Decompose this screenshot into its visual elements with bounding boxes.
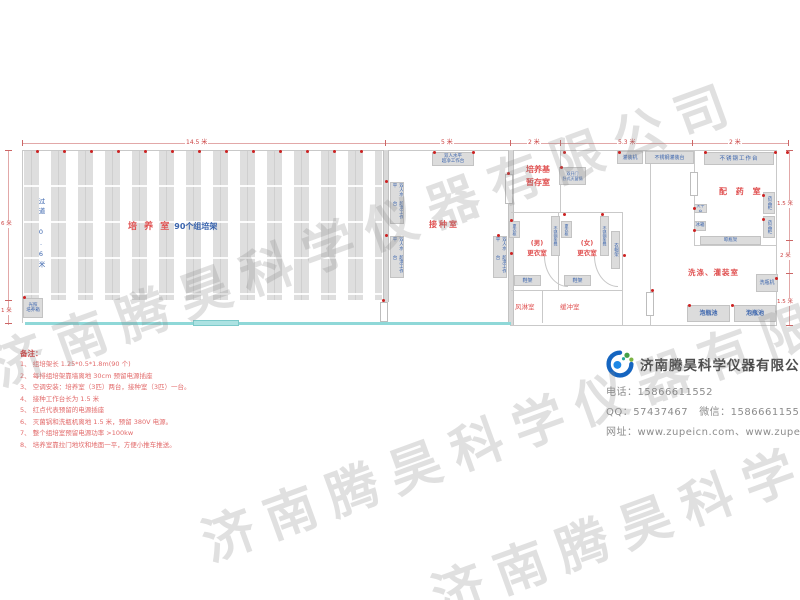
note-item: 5、 红点代表预留的电源插座 xyxy=(20,405,350,417)
wall xyxy=(383,150,389,302)
power-socket-dot xyxy=(774,151,777,154)
note-item: 3、 空调安装：培养室（3匹）两台，接种室（3匹）一台。 xyxy=(20,382,350,394)
company-wechat: 微信：15866611552 xyxy=(699,407,800,418)
dispensing-room-label: 配 药 室 xyxy=(719,186,764,197)
power-socket-dot xyxy=(198,150,201,153)
shoe-rack: 鞋架 xyxy=(564,275,591,286)
note-item: 2、 每排组培架靠墙离地 30cm 预留电源插座 xyxy=(20,371,350,383)
notes-block: 备注： 1、 组培架长 1.25*0.5*1.8m(90 个) 2、 每排组培架… xyxy=(20,349,350,451)
power-socket-dot xyxy=(693,229,696,232)
aisle-label: 过道 0.6米 xyxy=(36,198,46,271)
power-socket-dot xyxy=(333,150,336,153)
power-socket-dot xyxy=(36,150,39,153)
watermark: 济南腾昊科学仪器有限公司 xyxy=(420,289,800,600)
dim-right-middle: 2 米 xyxy=(779,253,792,260)
company-phone: 电话：15866611552 xyxy=(606,383,800,398)
wardrobe: 更衣柜 xyxy=(509,221,520,238)
power-socket-dot xyxy=(786,151,789,154)
clean-bench: 双人水平 超净工作台 xyxy=(390,236,404,278)
note-item: 6、 灭菌锅和洗瓶机离地 1.5 米，预留 380V 电源。 xyxy=(20,417,350,429)
inoculation-room-label: 接种室 xyxy=(429,219,459,230)
soak-pool: 泡瓶池 xyxy=(687,305,730,322)
power-socket-dot xyxy=(775,277,778,280)
company-name: 济南腾昊科学仪器有限公司 xyxy=(640,354,800,374)
corridor-glass-wall xyxy=(25,322,511,325)
door xyxy=(380,302,388,322)
power-socket-dot xyxy=(560,166,563,169)
stainless-filling-table: 不锈钢灌装台 xyxy=(645,151,694,164)
wall xyxy=(622,212,623,325)
power-socket-dot xyxy=(252,150,255,153)
men-changing-room-label: (男) 更衣室 xyxy=(522,238,552,258)
company-website: 网址：www.zupeicn.com、www.zupei17.com xyxy=(606,423,800,438)
room-name: 培 养 室 xyxy=(128,219,171,232)
notes-title: 备注： xyxy=(20,349,350,359)
wall xyxy=(694,245,777,246)
clean-bench: 双人水平 超净工作台 xyxy=(390,182,404,224)
power-socket-dot xyxy=(385,180,388,183)
power-socket-dot xyxy=(433,151,436,154)
air-shower-label: 风淋室 xyxy=(515,301,535,311)
company-qq-wechat: QQ：57437467 微信：15866611552 xyxy=(606,403,800,418)
power-socket-dot xyxy=(225,150,228,153)
dim-top-middle: 5.3 米 xyxy=(617,139,636,146)
note-item: 4、 接种工作台长为 1.5 米 xyxy=(20,394,350,406)
power-socket-dot xyxy=(510,252,513,255)
power-socket-dot xyxy=(601,213,604,216)
cultivation-room-label: 培 养 室 90个组培架 xyxy=(128,219,217,232)
wall xyxy=(511,290,623,291)
power-socket-dot xyxy=(144,150,147,153)
dim-top-storage: 2 米 xyxy=(527,139,541,146)
clean-bench: 双人水平 超净工作台 xyxy=(493,236,507,278)
power-socket-dot xyxy=(472,151,475,154)
dimension-line xyxy=(22,143,789,144)
stainless-bench: 不锈钢条凳 xyxy=(600,216,609,256)
door xyxy=(646,292,654,316)
power-socket-dot xyxy=(688,304,691,307)
women-changing-room-label: (女) 更衣室 xyxy=(572,238,602,258)
power-socket-dot xyxy=(563,213,566,216)
power-socket-dot xyxy=(651,289,654,292)
buffer-room-label: 缓冲室 xyxy=(560,301,580,311)
wall xyxy=(511,212,623,213)
power-socket-dot xyxy=(623,254,626,257)
dim-left-bottom: 1 米 xyxy=(0,308,13,315)
company-block: 济南腾昊科学仪器有限公司 电话：15866611552 QQ：57437467 … xyxy=(606,350,800,438)
power-socket-dot xyxy=(762,218,765,221)
stainless-bench: 不锈钢条凳 xyxy=(551,216,560,256)
note-item: 8、 培养室靠拉门地坎和地面一平，方便小推车推送。 xyxy=(20,440,350,452)
power-socket-dot xyxy=(117,150,120,153)
coat-rack: 衣帽架 xyxy=(611,231,620,269)
power-socket-dot xyxy=(497,234,500,237)
note-item: 7、 整个组培室预留电源功率 >100kw xyxy=(20,428,350,440)
dim-top-inoculation: 5 米 xyxy=(440,139,454,146)
dim-top-total: 14.5 米 xyxy=(185,139,208,146)
company-qq: QQ：57437467 xyxy=(606,407,688,418)
power-socket-dot xyxy=(563,151,566,154)
bottle-drying-rack: 晾瓶架 xyxy=(700,236,761,245)
power-socket-dot xyxy=(279,150,282,153)
power-socket-dot xyxy=(23,296,26,299)
wardrobe: 更衣柜 xyxy=(561,221,572,238)
power-socket-dot xyxy=(693,207,696,210)
power-socket-dot xyxy=(704,151,707,154)
rack-count-label: 90个组培架 xyxy=(174,221,217,232)
power-socket-dot xyxy=(171,150,174,153)
clean-bench: 双人水平 超净工作台 xyxy=(432,152,474,166)
power-socket-dot xyxy=(306,150,309,153)
power-socket-dot xyxy=(731,304,734,307)
dimension-line xyxy=(8,150,9,325)
light-incubator: 光照 培养箱 xyxy=(23,298,43,318)
power-socket-dot xyxy=(510,219,513,222)
power-socket-dot xyxy=(385,234,388,237)
dim-right-top: 1.5 米 xyxy=(776,201,794,208)
dim-right-bottom: 1.5 米 xyxy=(776,299,794,306)
wall xyxy=(510,325,777,326)
wall xyxy=(542,290,543,323)
power-socket-dot xyxy=(63,150,66,153)
washing-room-label: 洗涤、灌装室 xyxy=(688,267,739,278)
wall xyxy=(776,150,777,326)
dim-left-height: 6 米 xyxy=(0,221,13,228)
autoclave: 双开门 卧式灭菌锅 xyxy=(559,167,586,185)
floor-plan: 14.5 米 5 米 2 米 5.3 米 2 米 6 米 1 米 1.5 米 2… xyxy=(0,0,800,600)
door xyxy=(505,174,513,204)
stainless-work-table: 不锈钢工作台 xyxy=(704,152,774,165)
door xyxy=(690,172,698,196)
storage-room-label: 培养基 暂存室 xyxy=(517,162,559,188)
company-logo-icon xyxy=(606,350,634,378)
note-item: 1、 组培架长 1.25*0.5*1.8m(90 个) xyxy=(20,359,350,371)
dim-top-dispensing: 2 米 xyxy=(728,139,742,146)
power-socket-dot xyxy=(90,150,93,153)
soak-pool: 泡瓶池 xyxy=(734,305,776,322)
shoe-rack: 鞋架 xyxy=(514,275,541,286)
power-socket-dot xyxy=(382,299,385,302)
sliding-door xyxy=(193,320,239,326)
power-socket-dot xyxy=(618,151,621,154)
power-socket-dot xyxy=(360,150,363,153)
power-socket-dot xyxy=(507,172,510,175)
